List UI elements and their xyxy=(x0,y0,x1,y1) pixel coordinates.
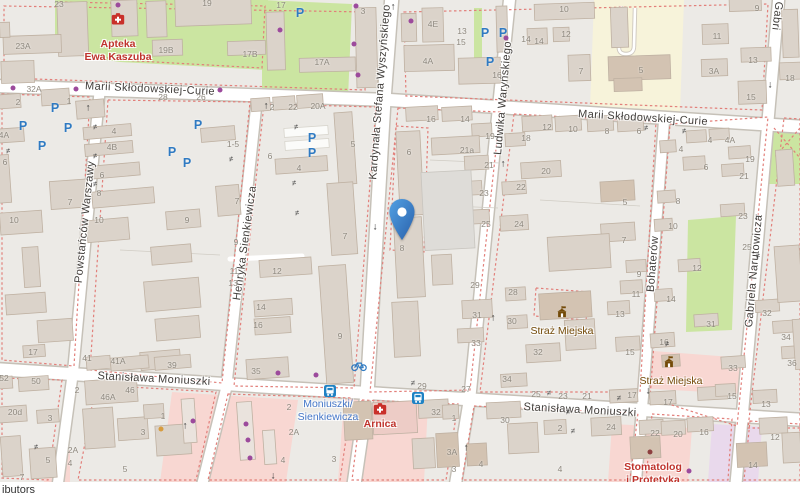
poi-label-line: Sienkiewicza xyxy=(298,411,359,424)
location-marker-pin[interactable] xyxy=(388,198,416,242)
house-number: 2 xyxy=(75,385,80,395)
house-number: 20d xyxy=(8,407,22,417)
house-number: 3A xyxy=(447,447,457,457)
house-number: 1 xyxy=(67,96,72,106)
house-number: 19B xyxy=(158,45,173,55)
poi-label-line: Arnica xyxy=(364,418,397,431)
house-number: 21 xyxy=(582,391,591,401)
house-number: 11 xyxy=(713,31,722,41)
house-number: 8 xyxy=(605,126,610,136)
street-label: Bohaterów xyxy=(645,236,661,293)
shop-dot xyxy=(352,42,357,47)
house-number: 5 xyxy=(351,139,356,149)
gate-icon: ≠ xyxy=(566,407,571,416)
house-number: 3A xyxy=(709,66,719,76)
gate-icon: ≠ xyxy=(33,442,38,451)
house-number: 7 xyxy=(20,472,25,482)
house-number: 2A xyxy=(68,445,78,455)
oneway-arrow: ↓ xyxy=(646,386,651,397)
poi-label-apteka-ewa-kaszuba[interactable]: AptekaEwa Kaszuba xyxy=(84,38,151,63)
house-number: 6 xyxy=(100,170,105,180)
house-number: 2 xyxy=(16,97,21,107)
house-number: 5 xyxy=(123,464,128,474)
oneway-arrow: ↓ xyxy=(768,80,773,91)
house-number: 34 xyxy=(502,374,511,384)
house-number: 34 xyxy=(781,332,790,342)
house-number: 22 xyxy=(516,182,525,192)
house-number: 16 xyxy=(426,114,435,124)
house-number: 5 xyxy=(46,455,51,465)
house-number: 46A xyxy=(100,392,115,402)
house-number: 25 xyxy=(531,389,540,399)
house-number: 14 xyxy=(460,114,469,124)
house-number: 26 xyxy=(196,92,205,102)
house-number: 6 xyxy=(637,126,642,136)
poi-label-line: Moniuszki/ xyxy=(298,398,359,411)
house-number: 6 xyxy=(407,147,412,157)
oneway-arrow: ↑ xyxy=(264,101,269,112)
house-number: 20 xyxy=(673,429,682,439)
parking-icon: P xyxy=(308,131,316,145)
house-number: 6 xyxy=(268,151,273,161)
house-number: 17 xyxy=(28,347,37,357)
house-number: 50 xyxy=(31,376,40,386)
gate-icon: ≠ xyxy=(92,151,97,160)
house-number: 23 xyxy=(54,0,63,9)
house-number: 27 xyxy=(461,384,470,394)
house-number: 4 xyxy=(281,455,286,465)
parking-icon: P xyxy=(481,26,489,40)
street-label: Gabri xyxy=(769,1,784,31)
house-number: 12 xyxy=(542,122,551,132)
house-number: 25 xyxy=(742,242,751,252)
poi-label-line: Apteka xyxy=(84,38,151,51)
house-number: 2 xyxy=(287,402,292,412)
shop-dot xyxy=(248,456,253,461)
shop-dot xyxy=(246,438,251,443)
shop-dot xyxy=(276,371,281,376)
house-number: 41A xyxy=(110,356,125,366)
house-number: 20 xyxy=(541,166,550,176)
townhall-icon[interactable] xyxy=(556,306,569,318)
house-number: 4A xyxy=(423,56,433,66)
house-number: 14 xyxy=(256,302,265,312)
house-number: 7 xyxy=(68,197,73,207)
gate-icon: ≠ xyxy=(571,426,576,435)
parking-icon: P xyxy=(38,139,46,153)
house-number: 11 xyxy=(230,266,239,276)
gate-icon: ≠ xyxy=(643,123,648,132)
shop-dot xyxy=(191,419,196,424)
map-canvas[interactable]: Marii Skłodowskiej-CurieMarii Skłodowski… xyxy=(0,0,800,500)
oneway-arrow: ↓ xyxy=(271,471,276,482)
street-label: Stanisława Moniuszki xyxy=(523,401,637,419)
house-number: 18 xyxy=(785,73,794,83)
poi-label-straz-miejska-1[interactable]: Straż Miejska xyxy=(530,325,593,338)
house-number: 14 xyxy=(534,36,543,46)
poi-label-arnica[interactable]: Arnica xyxy=(364,418,397,431)
house-number: 4 xyxy=(112,126,117,136)
house-number: 1-5 xyxy=(227,139,239,149)
house-number: 13 xyxy=(615,309,624,319)
house-number: 17A xyxy=(314,57,329,67)
oneway-arrow: ↑ xyxy=(391,2,396,13)
oneway-arrow: ↓ xyxy=(373,222,378,233)
house-number: 17 xyxy=(627,390,636,400)
house-number: 41 xyxy=(82,353,91,363)
street-label: Kardynała Stefana Wyszyńskiego xyxy=(367,4,393,180)
house-number: 12 xyxy=(692,263,701,273)
house-number: 5 xyxy=(639,65,644,75)
house-number: 24 xyxy=(514,219,523,229)
gate-icon: ≠ xyxy=(228,154,233,163)
house-number: 6 xyxy=(3,157,8,167)
house-number: 8 xyxy=(676,196,681,206)
oneway-arrow: ↑ xyxy=(501,159,506,170)
oneway-arrow: ↑ xyxy=(86,103,91,114)
house-number: 1 xyxy=(452,413,457,423)
oneway-arrow: ↓ xyxy=(754,212,759,223)
house-number: 20A xyxy=(310,101,325,111)
house-number: 30 xyxy=(507,316,516,326)
shop-dot xyxy=(354,4,359,9)
house-number: 13 xyxy=(228,278,237,288)
house-number: 14 xyxy=(666,294,675,304)
bicycle-parking-icon xyxy=(351,361,367,372)
house-number: 3 xyxy=(141,427,146,437)
parking-icon: P xyxy=(51,101,59,115)
house-number: 14 xyxy=(748,460,757,470)
oneway-arrow: ↑ xyxy=(183,421,188,432)
shop-dot xyxy=(244,422,249,427)
house-number: 30 xyxy=(500,415,509,425)
house-number: 9 xyxy=(637,269,642,279)
house-number: 23 xyxy=(558,391,567,401)
gate-icon: ≠ xyxy=(664,339,669,348)
house-number: 15 xyxy=(727,391,736,401)
house-number: 6 xyxy=(704,162,709,172)
house-number: 7 xyxy=(579,66,584,76)
house-number: 8 xyxy=(97,188,102,198)
shop-dot xyxy=(11,86,16,91)
house-number: 5 xyxy=(623,197,628,207)
house-number: 13 xyxy=(761,399,770,409)
house-number: 25 xyxy=(481,219,490,229)
house-number: 10 xyxy=(668,221,677,231)
gate-icon: ≠ xyxy=(294,208,299,217)
bus-stop-icon xyxy=(324,385,336,397)
gate-icon: ≠ xyxy=(5,146,10,155)
house-number: 11 xyxy=(632,289,641,299)
poi-label-line: Straż Miejska xyxy=(530,325,593,338)
house-number: 1 xyxy=(161,411,166,421)
townhall-icon[interactable] xyxy=(663,356,676,368)
house-number: 9 xyxy=(338,331,343,341)
house-number: 4E xyxy=(428,19,438,29)
house-number: 39 xyxy=(167,360,176,370)
house-number: 3 xyxy=(361,6,366,16)
parking-icon: P xyxy=(168,145,176,159)
house-number: 15 xyxy=(625,347,634,357)
attribution-text[interactable]: ibutors xyxy=(2,484,35,496)
house-number: 7 xyxy=(622,235,627,245)
house-number: 12 xyxy=(272,266,281,276)
house-number: 33 xyxy=(728,363,737,373)
house-number: 21a xyxy=(460,145,474,155)
house-number: 21 xyxy=(739,171,748,181)
house-number: 15 xyxy=(456,37,465,47)
house-number: 17 xyxy=(663,397,672,407)
house-number: 9 xyxy=(185,215,190,225)
house-number: 28 xyxy=(508,287,517,297)
house-number: 4 xyxy=(68,458,73,468)
house-number: 10 xyxy=(94,215,103,225)
parking-icon: P xyxy=(64,121,72,135)
house-number: 19 xyxy=(202,0,211,8)
oneway-arrow: ↑ xyxy=(464,443,469,454)
shop-dot xyxy=(159,427,164,432)
house-number: 13 xyxy=(457,26,466,36)
house-number: 7 xyxy=(343,231,348,241)
house-number: 13 xyxy=(748,55,757,65)
house-number: 4 xyxy=(297,163,302,173)
street-label: Stanisława Moniuszki xyxy=(97,370,211,388)
house-number: 23 xyxy=(479,188,488,198)
house-number: 12 xyxy=(561,29,570,39)
house-number: 24 xyxy=(606,422,615,432)
house-number: 31 xyxy=(706,319,715,329)
house-number: 16 xyxy=(253,320,262,330)
house-number: 2 xyxy=(558,423,563,433)
shop-dot xyxy=(356,73,361,78)
house-number: 21 xyxy=(484,160,493,170)
house-number: 29 xyxy=(417,381,426,391)
house-number: 4 xyxy=(479,459,484,469)
house-number: 22 xyxy=(288,102,297,112)
shop-dot xyxy=(648,450,653,455)
poi-label-line: Ewa Kaszuba xyxy=(84,51,151,64)
parking-icon: P xyxy=(19,119,27,133)
house-number: 3 xyxy=(48,413,53,423)
house-number: 32 xyxy=(533,347,542,357)
parking-icon: P xyxy=(296,6,304,20)
poi-label-stop-moniuszki-sienkiewicza[interactable]: Moniuszki/Sienkiewicza xyxy=(298,398,359,423)
house-number: 3 xyxy=(332,454,337,464)
house-number: 10 xyxy=(568,124,577,134)
shop-dot xyxy=(218,88,223,93)
house-number: 33 xyxy=(471,338,480,348)
house-number: 19 xyxy=(745,154,754,164)
house-number: 14 xyxy=(521,34,530,44)
house-number: 4A xyxy=(0,130,9,140)
house-number: 8 xyxy=(400,243,405,253)
house-number: 32A xyxy=(26,84,41,94)
gate-icon: ≠ xyxy=(92,122,97,131)
oneway-arrow: ↑ xyxy=(491,313,496,324)
house-number: 9 xyxy=(234,237,239,247)
parking-icon: P xyxy=(183,156,191,170)
gate-icon: ≠ xyxy=(617,393,622,402)
house-number: 18 xyxy=(521,133,530,143)
house-number: 3 xyxy=(452,464,457,474)
house-number: 9 xyxy=(755,3,760,13)
gate-icon: ≠ xyxy=(681,126,686,135)
house-number: 23 xyxy=(738,211,747,221)
attribution-bar: ibutors xyxy=(0,482,800,500)
gate-icon: ≠ xyxy=(547,388,552,397)
house-number: 22 xyxy=(650,428,659,438)
house-number: 10 xyxy=(559,4,568,14)
map-labels-layer: Marii Skłodowskiej-CurieMarii Skłodowski… xyxy=(0,0,800,500)
house-number: 12 xyxy=(770,432,779,442)
house-number: 10 xyxy=(9,215,18,225)
shop-dot xyxy=(314,373,319,378)
bus-stop-icon xyxy=(412,392,424,404)
parking-icon: P xyxy=(194,118,202,132)
poi-label-line: Stomatolog xyxy=(624,461,682,474)
house-number: 23A xyxy=(15,41,30,51)
pharmacy-icon[interactable] xyxy=(111,13,125,26)
house-number: 35 xyxy=(251,366,260,376)
shop-dot xyxy=(116,3,121,8)
house-number: 52 xyxy=(0,373,9,383)
house-number: 4 xyxy=(679,144,684,154)
house-number: 32 xyxy=(762,308,771,318)
parking-icon: P xyxy=(308,146,316,160)
house-number: 29 xyxy=(470,280,479,290)
gate-icon: ≠ xyxy=(411,378,416,387)
house-number: 16 xyxy=(699,427,708,437)
house-number: 17 xyxy=(276,0,285,10)
house-number: 16 xyxy=(492,70,501,80)
house-number: 4B xyxy=(107,142,117,152)
gate-icon: ≠ xyxy=(755,251,760,260)
house-number: 46 xyxy=(125,385,134,395)
house-number: 15 xyxy=(746,92,755,102)
shop-dot xyxy=(687,469,692,474)
parking-icon: P xyxy=(486,55,494,69)
house-number: 7 xyxy=(235,196,240,206)
shop-dot xyxy=(278,28,283,33)
house-number: 36 xyxy=(787,358,796,368)
gate-icon: ≠ xyxy=(92,179,97,188)
house-number: 2 xyxy=(270,102,275,112)
shop-dot xyxy=(409,19,414,24)
house-number: 4A xyxy=(725,135,735,145)
house-number: 4 xyxy=(708,135,713,145)
street-label: Ludwika Waryńskiego xyxy=(492,41,514,156)
house-number: 2A xyxy=(289,427,299,437)
shop-dot xyxy=(74,87,79,92)
gate-icon: ≠ xyxy=(291,178,296,187)
shop-dot xyxy=(504,36,509,41)
house-number: 19 xyxy=(485,131,494,141)
house-number: 31 xyxy=(472,310,481,320)
house-number: 28 xyxy=(158,92,167,102)
house-number: 17B xyxy=(242,49,257,59)
pharmacy-icon[interactable] xyxy=(373,403,387,416)
house-number: 4 xyxy=(558,464,563,474)
gate-icon: ≠ xyxy=(293,122,298,131)
house-number: 32 xyxy=(431,407,440,417)
